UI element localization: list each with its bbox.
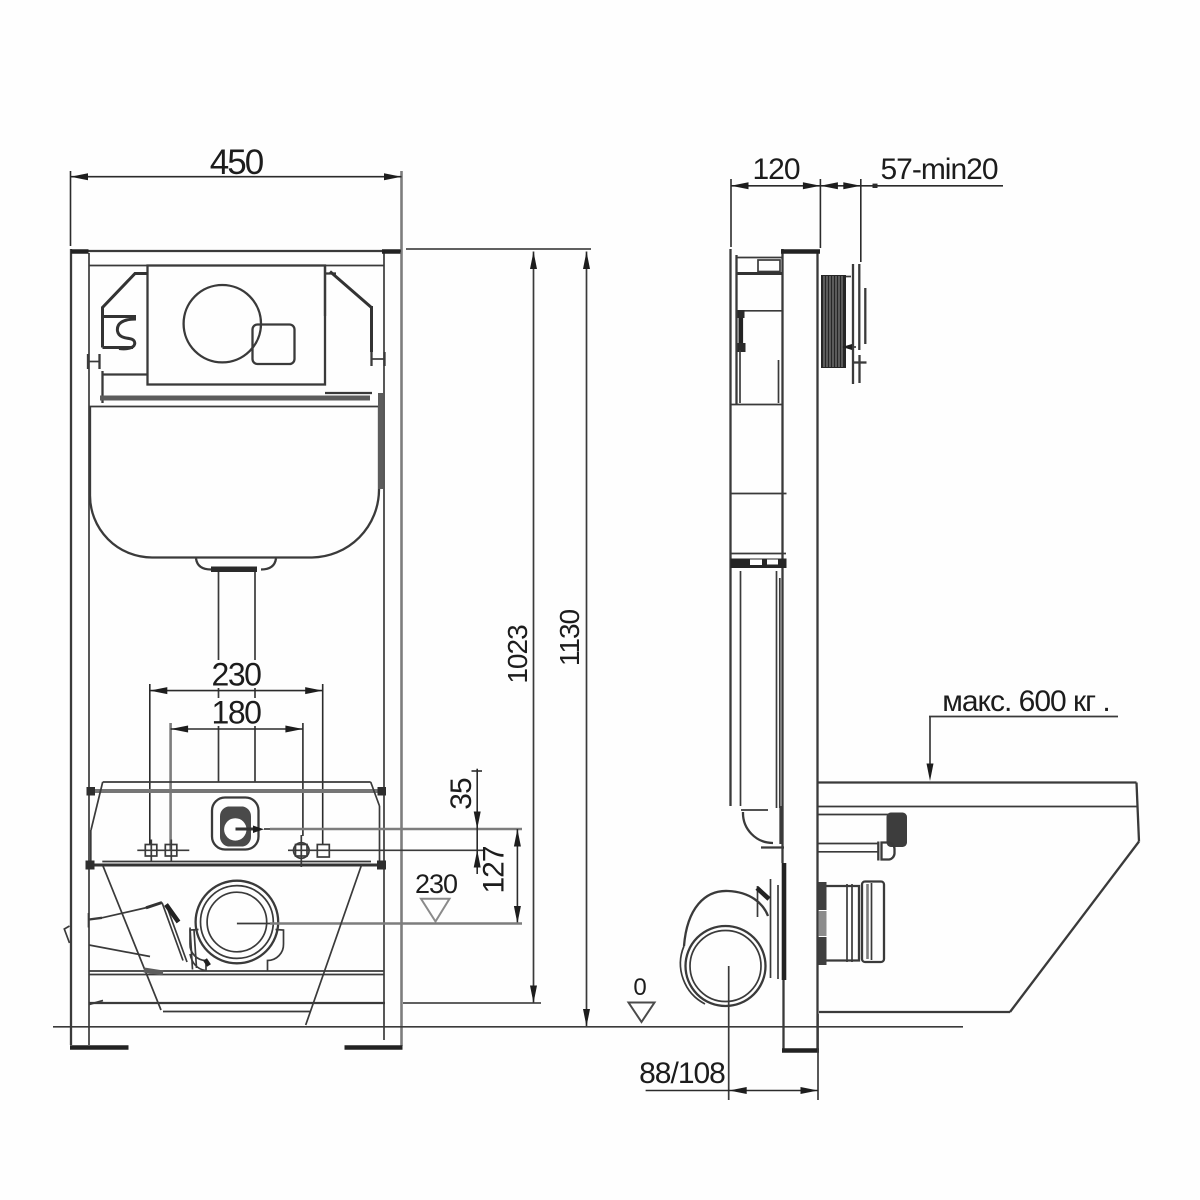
svg-text:127: 127	[478, 846, 511, 893]
svg-text:макс. 600 кг .: макс. 600 кг .	[942, 685, 1110, 718]
svg-text:230: 230	[212, 657, 262, 693]
svg-text:230: 230	[415, 869, 457, 899]
svg-text:180: 180	[212, 695, 262, 731]
svg-text:1130: 1130	[554, 609, 585, 666]
svg-text:88/108: 88/108	[639, 1057, 725, 1090]
svg-text:35: 35	[445, 778, 478, 810]
svg-text:120: 120	[752, 153, 799, 186]
svg-text:450: 450	[210, 143, 264, 182]
svg-text:57-min20: 57-min20	[880, 153, 997, 186]
svg-text:0: 0	[633, 974, 646, 1001]
svg-text:1023: 1023	[502, 625, 533, 684]
